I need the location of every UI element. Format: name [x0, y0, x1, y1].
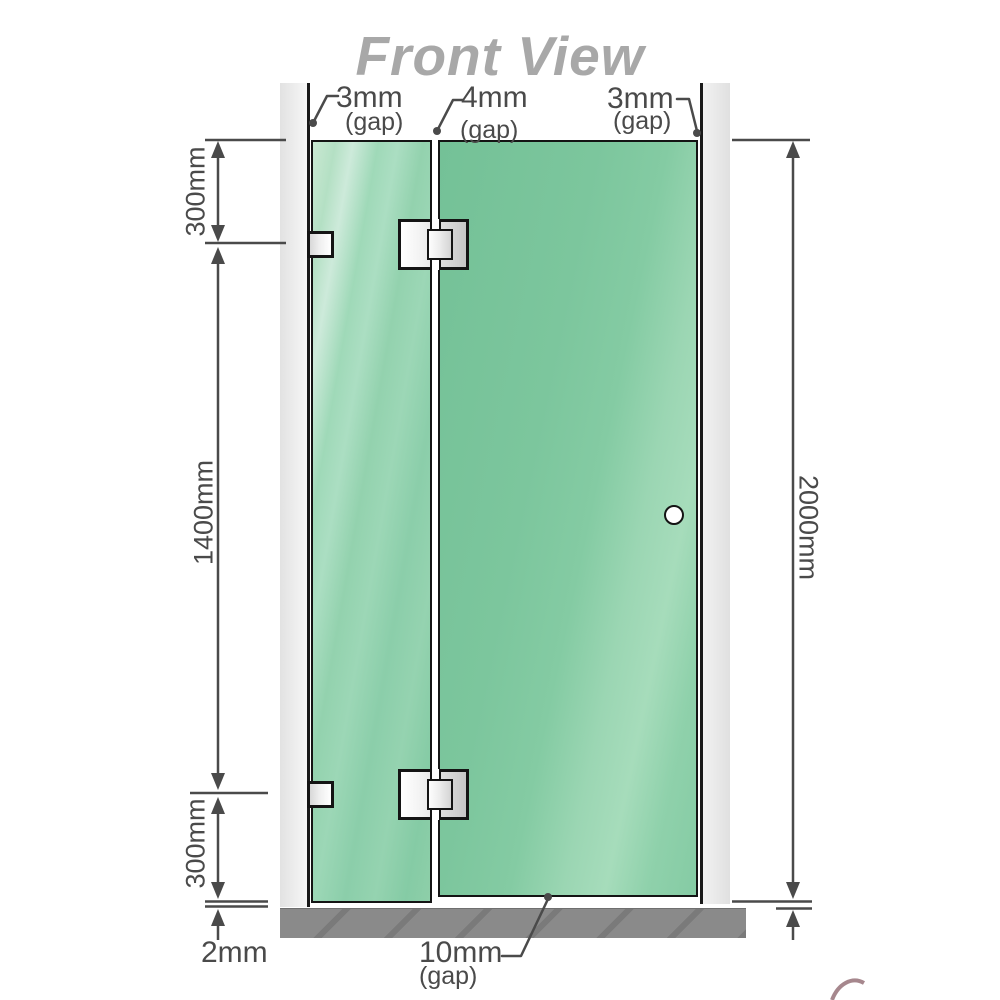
floor-bar — [280, 908, 746, 938]
dim-right-total-label: 2000mm — [795, 453, 822, 603]
hinge-bottom — [398, 769, 469, 820]
wall-channel-right — [703, 83, 730, 904]
dim-left-bottom-label: 300mm — [183, 784, 210, 904]
wall-channel-right-edge — [700, 83, 703, 904]
gap-top-middle-value: 4mm — [461, 83, 528, 113]
wall-bracket-top — [307, 231, 334, 258]
door-handle-knob — [664, 505, 684, 525]
watermark-mark — [832, 980, 864, 1000]
wall-bracket-bottom — [307, 781, 334, 808]
dim-floor-gap-label: 2mm — [201, 938, 268, 968]
gap-top-left-unit: (gap) — [345, 110, 403, 135]
page-title: Front View — [0, 24, 1000, 88]
shower-screen-front-view-diagram: Front View — [0, 0, 1000, 1000]
hinge-knuckle — [427, 229, 453, 260]
hinge-knuckle — [427, 779, 453, 810]
gap-bottom-unit: (gap) — [419, 964, 477, 989]
dim-left-top-label: 300mm — [183, 132, 210, 252]
gap-top-middle-unit: (gap) — [460, 118, 518, 143]
dim-left-middle-label: 1400mm — [191, 443, 218, 583]
wall-channel-left — [280, 83, 307, 907]
door-glass-panel — [438, 140, 698, 897]
gap-top-right-unit: (gap) — [613, 109, 671, 134]
hinge-top — [398, 219, 469, 270]
